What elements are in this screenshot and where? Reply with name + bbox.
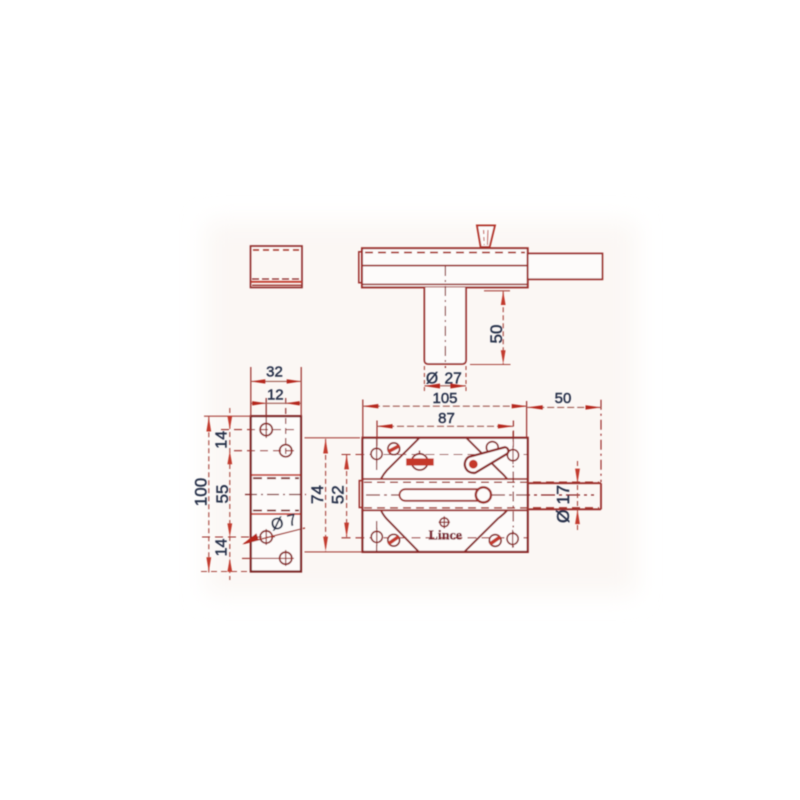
svg-text:12: 12 xyxy=(267,387,284,404)
svg-text:14: 14 xyxy=(213,539,230,557)
svg-text:100: 100 xyxy=(192,478,211,506)
svg-text:Ø 17: Ø 17 xyxy=(553,485,573,523)
svg-text:Lince: Lince xyxy=(428,529,461,544)
svg-text:87: 87 xyxy=(438,410,455,427)
svg-text:52: 52 xyxy=(329,485,348,504)
svg-text:32: 32 xyxy=(266,364,283,381)
svg-text:50: 50 xyxy=(487,325,506,344)
svg-text:105: 105 xyxy=(432,390,457,407)
svg-text:74: 74 xyxy=(308,485,327,504)
svg-text:14: 14 xyxy=(213,431,230,449)
svg-text:50: 50 xyxy=(555,390,572,407)
svg-text:55: 55 xyxy=(213,485,232,504)
